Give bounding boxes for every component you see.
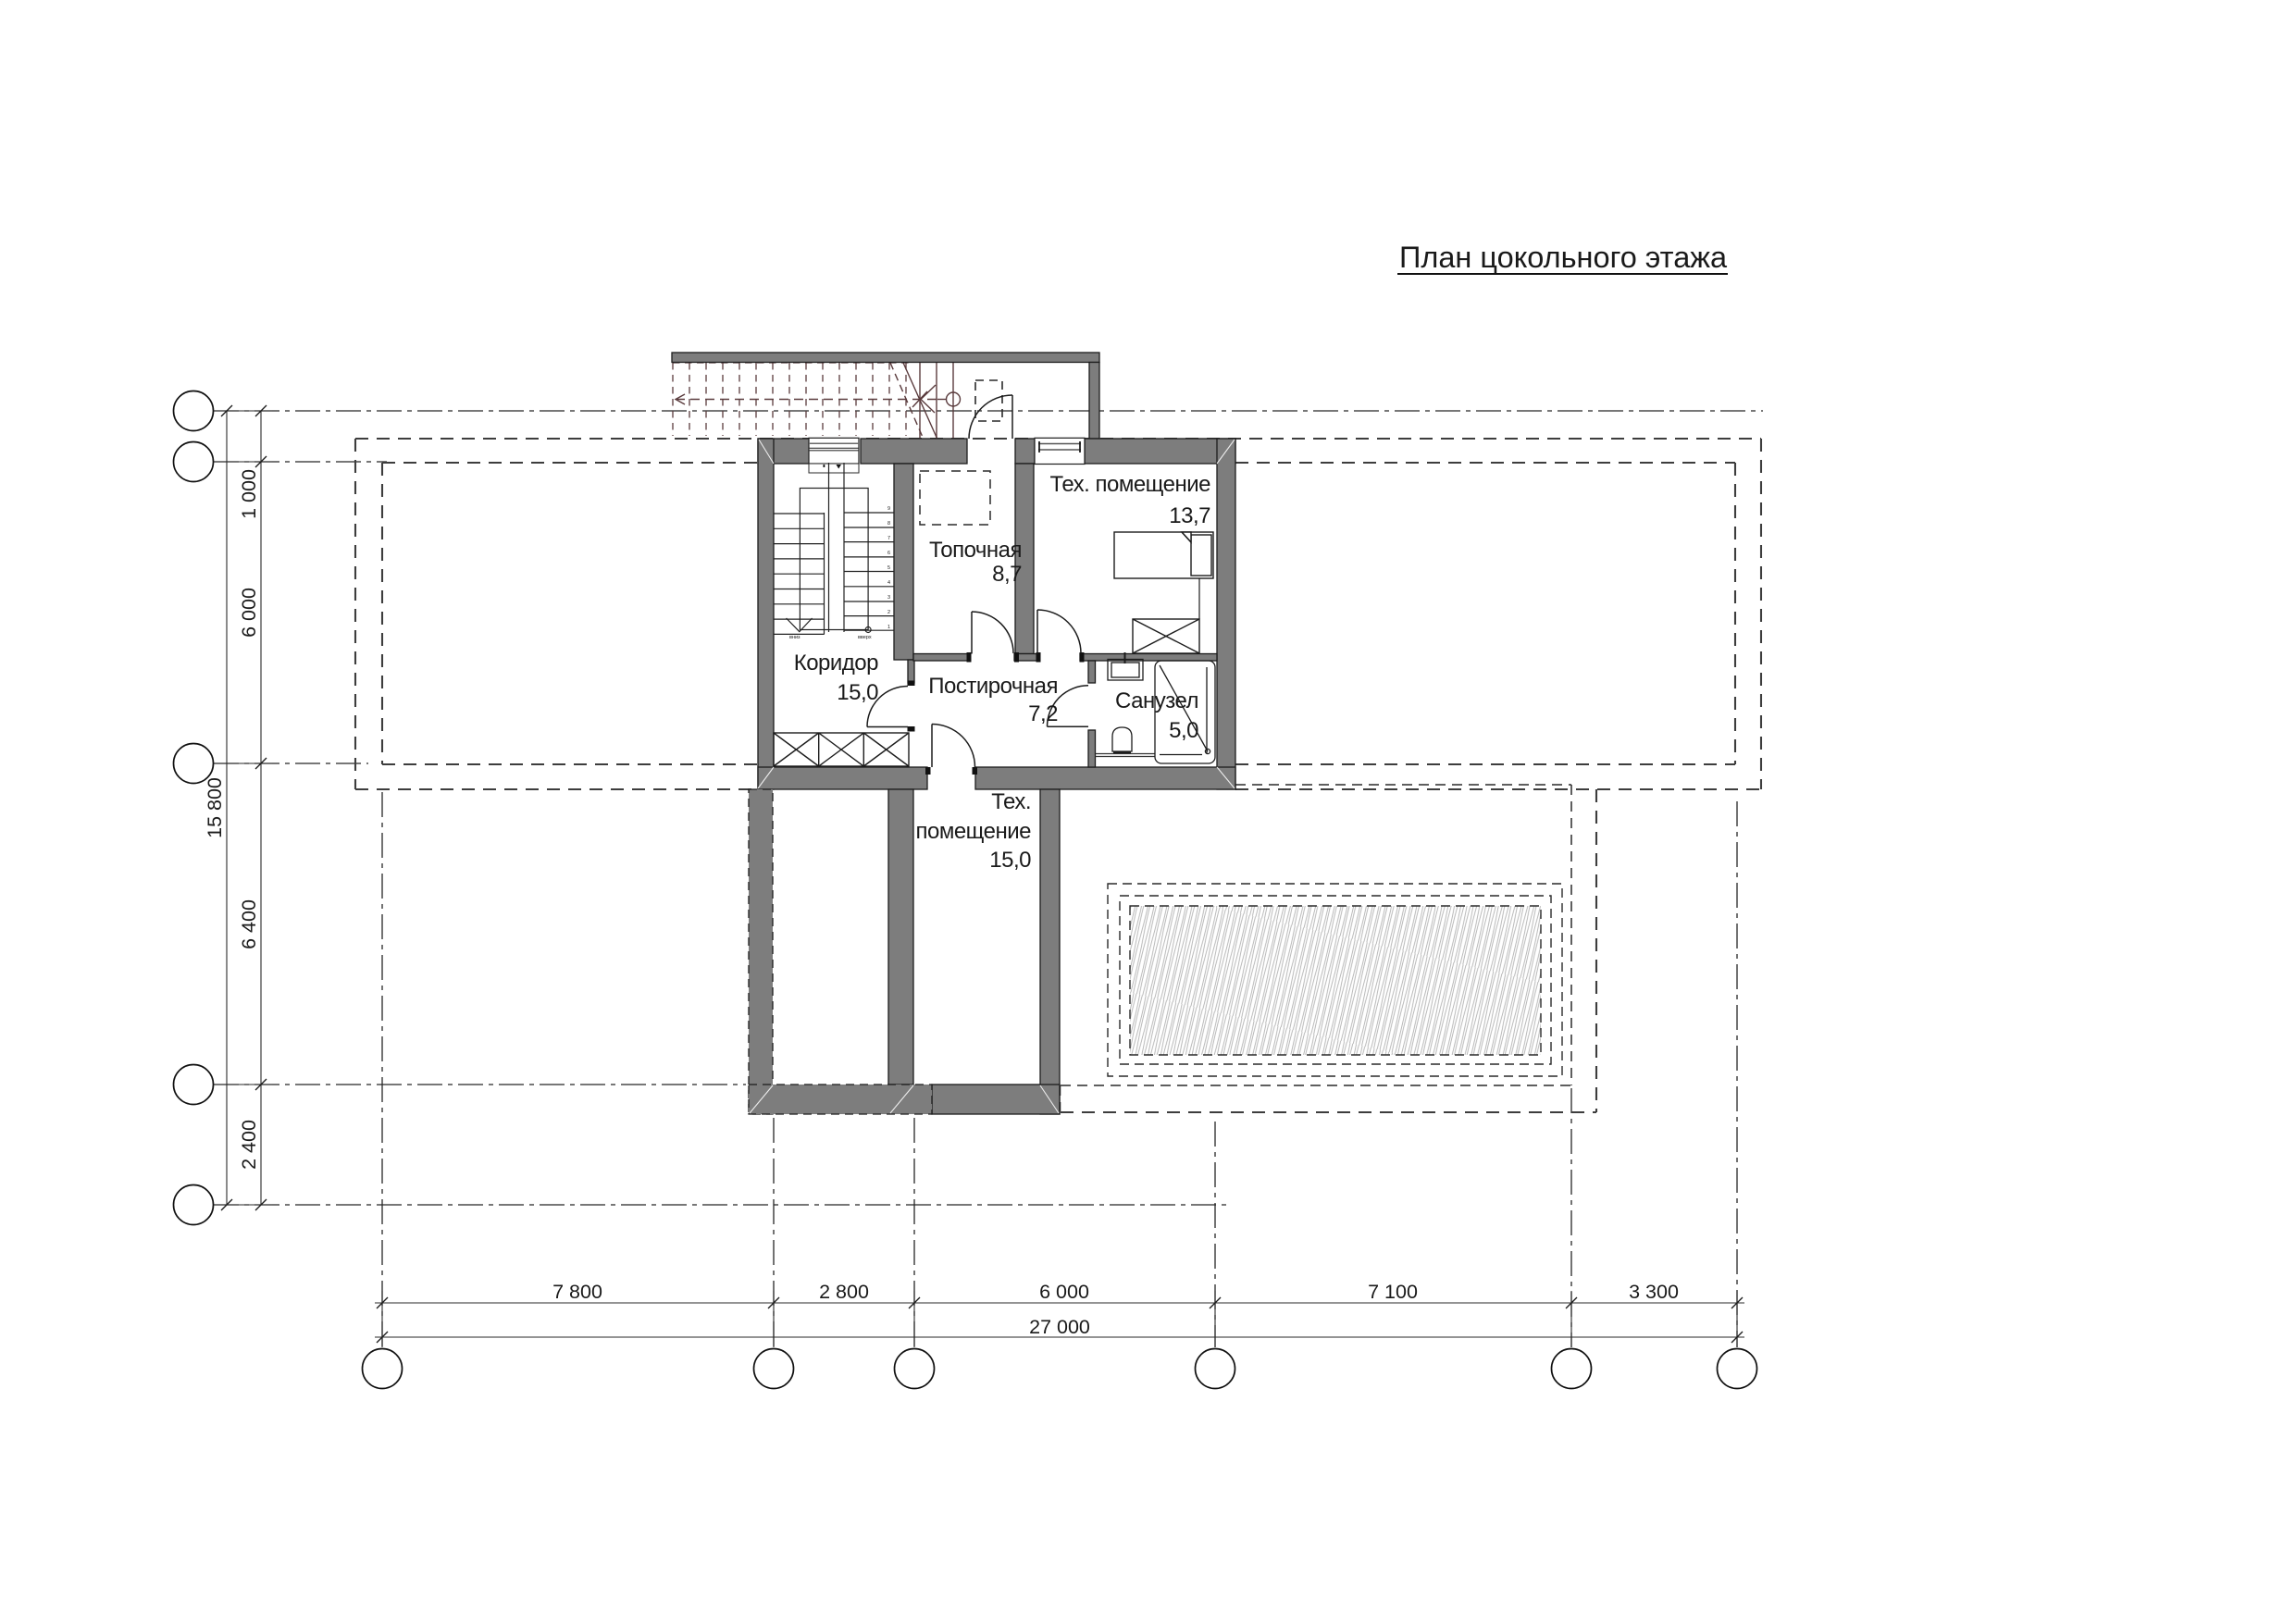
svg-text:вверх: вверх	[858, 635, 872, 640]
svg-text:15 800: 15 800	[204, 777, 226, 838]
svg-text:15,0: 15,0	[989, 848, 1031, 873]
svg-text:вниз: вниз	[789, 635, 800, 640]
svg-text:4: 4	[887, 580, 890, 586]
svg-text:13,7: 13,7	[1169, 503, 1210, 528]
svg-text:2 800: 2 800	[819, 1281, 869, 1303]
svg-text:5,0: 5,0	[1169, 718, 1198, 743]
svg-text:3: 3	[887, 595, 890, 601]
svg-text:8: 8	[887, 521, 890, 527]
svg-text:План цокольного этажа: План цокольного этажа	[1399, 241, 1728, 274]
svg-text:6 400: 6 400	[238, 899, 260, 949]
svg-text:7 100: 7 100	[1368, 1281, 1418, 1303]
svg-text:Топочная: Топочная	[929, 538, 1022, 563]
svg-text:2 400: 2 400	[238, 1120, 260, 1170]
svg-text:1: 1	[887, 625, 890, 630]
svg-text:1 000: 1 000	[238, 469, 260, 519]
svg-text:8,7: 8,7	[992, 562, 1022, 587]
svg-text:Санузел: Санузел	[1115, 688, 1198, 713]
svg-text:6: 6	[887, 551, 890, 556]
svg-text:27 000: 27 000	[1029, 1316, 1090, 1338]
svg-text:2: 2	[887, 610, 890, 615]
svg-text:7,2: 7,2	[1028, 701, 1058, 726]
svg-text:15,0: 15,0	[837, 680, 878, 705]
svg-text:Тех.: Тех.	[991, 789, 1031, 814]
svg-text:помещение: помещение	[915, 819, 1031, 844]
svg-text:Коридор: Коридор	[794, 651, 878, 676]
svg-text:6 000: 6 000	[238, 588, 260, 638]
svg-text:7: 7	[887, 536, 890, 541]
svg-text:7 800: 7 800	[552, 1281, 602, 1303]
svg-text:5: 5	[887, 565, 890, 571]
svg-text:3 300: 3 300	[1629, 1281, 1679, 1303]
svg-text:9: 9	[887, 506, 890, 512]
svg-text:6 000: 6 000	[1039, 1281, 1089, 1303]
svg-text:Тех. помещение: Тех. помещение	[1050, 472, 1211, 497]
svg-text:Постирочная: Постирочная	[928, 674, 1058, 699]
